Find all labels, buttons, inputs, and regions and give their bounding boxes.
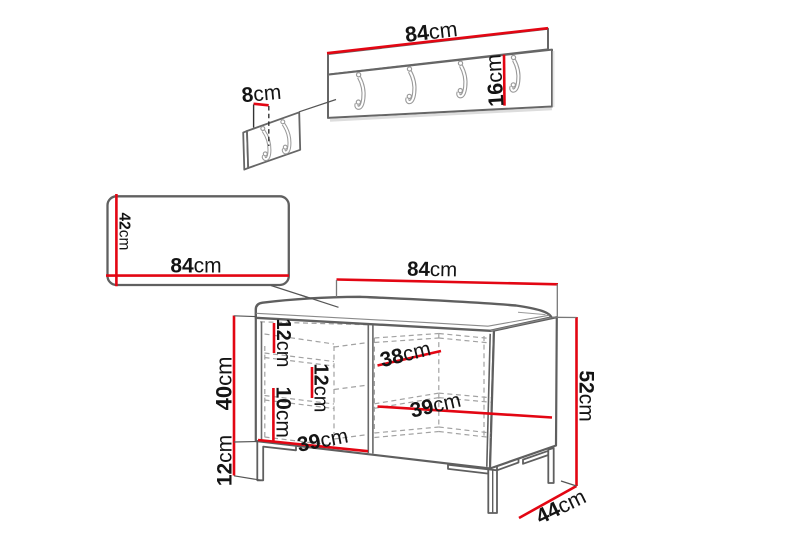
svg-text:12cm: 12cm (272, 319, 294, 368)
svg-text:8cm: 8cm (241, 81, 283, 107)
svg-text:12cm: 12cm (310, 364, 332, 413)
svg-text:84cm: 84cm (407, 258, 458, 282)
svg-text:16cm: 16cm (481, 53, 508, 107)
svg-text:12cm: 12cm (214, 435, 237, 486)
svg-text:52cm: 52cm (575, 370, 598, 421)
svg-text:10cm: 10cm (272, 387, 295, 438)
svg-text:84cm: 84cm (170, 255, 221, 278)
svg-text:42cm: 42cm (116, 213, 133, 251)
svg-text:40cm: 40cm (212, 357, 237, 411)
